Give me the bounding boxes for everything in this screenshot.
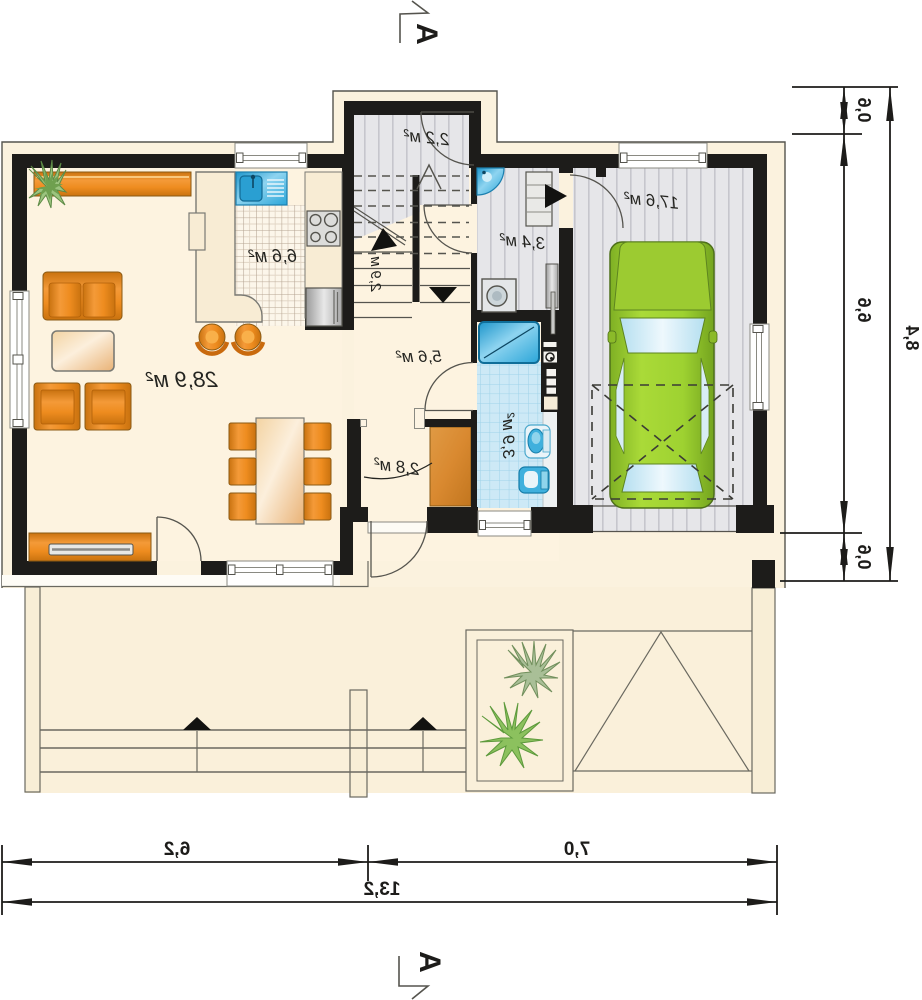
svg-text:A: A xyxy=(413,951,446,973)
svg-text:A: A xyxy=(410,23,443,45)
svg-text:6,6 м²: 6,6 м² xyxy=(248,246,297,266)
svg-text:0,6: 0,6 xyxy=(854,544,874,569)
svg-text:6,2: 6,2 xyxy=(164,839,190,860)
svg-text:13,2: 13,2 xyxy=(364,879,401,900)
svg-text:28,9 м²: 28,9 м² xyxy=(146,367,219,392)
svg-text:5,6 м²: 5,6 м² xyxy=(395,347,442,366)
svg-text:8,4: 8,4 xyxy=(902,325,922,350)
svg-text:6,6: 6,6 xyxy=(854,297,874,322)
svg-text:3,9 м²: 3,9 м² xyxy=(499,412,518,459)
svg-text:7,0: 7,0 xyxy=(564,839,590,860)
svg-text:2,9 м: 2,9 м xyxy=(367,256,384,292)
svg-text:0,6: 0,6 xyxy=(854,97,874,122)
